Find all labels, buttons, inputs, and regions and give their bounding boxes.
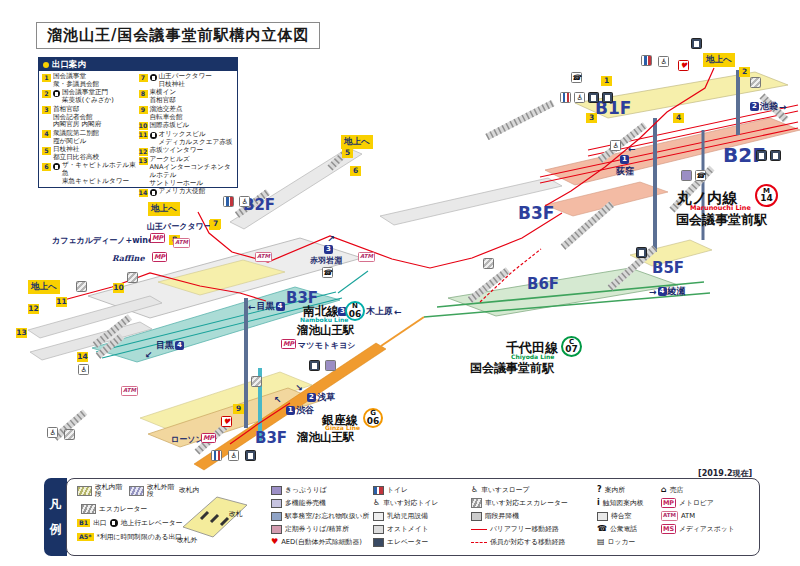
ticket-machine-icon — [325, 360, 336, 371]
direction-akabane-badge: 3 — [324, 245, 333, 254]
chiyoda-station: 国会議事堂前駅 — [470, 360, 554, 377]
chiyoda-line-en: Chiyoda Line — [511, 353, 554, 360]
toilet-icon — [211, 450, 222, 461]
page-title: 溜池山王/国会議事堂前駅構内立体図 — [36, 22, 320, 49]
legend-nursery: 乳幼児用設備 — [373, 511, 428, 521]
wheelchair-toilet-icon: ♿ — [658, 56, 669, 67]
legend-box: 改札内階段 改札外階段 エスカレーター B1出口 地上行エレベーター A5**利… — [66, 478, 760, 556]
exit-entry: 2国会議事堂正門茱萸坂(ぐみざか) — [42, 89, 139, 105]
to-ground-badge: 地上へ — [148, 202, 180, 216]
arrow-upright-icon: ↗ — [327, 234, 335, 244]
legend-ticket-office: きっぷうりば — [271, 485, 327, 495]
elevator-icon — [150, 132, 157, 139]
floor-label-b1f: B1F — [595, 98, 631, 118]
legend-pass-office: 定期券うりば/精算所 — [271, 524, 349, 534]
exit-entry: 3首相官邸国会記者会館内閣官房 内閣府 — [42, 106, 139, 130]
direction-meguro-a: ←目黒4 — [248, 300, 285, 313]
elevator-icon — [588, 92, 599, 103]
floor-label-b5f: B5F — [652, 259, 684, 277]
exit-entry: 4衆議院第二別館霞が関ビル — [42, 130, 139, 146]
aed-icon: ♥ — [271, 538, 278, 546]
direction-ikebukuro: 2池袋→ — [750, 100, 787, 113]
nursery-icon — [373, 512, 384, 521]
legend-escalator: エスカレーター — [81, 504, 147, 514]
exit-entry: 14アメリカ大使館 — [139, 188, 236, 197]
question-icon: ? — [597, 486, 602, 494]
ticket-office-icon — [271, 486, 282, 495]
elevator-icon — [309, 360, 320, 371]
legend-stair-lift: 階段昇降機 — [471, 511, 519, 521]
arrow-left-icon: ← — [394, 307, 402, 317]
toilet-icon — [373, 486, 384, 495]
elevator-icon — [53, 163, 60, 170]
legend-tab: 凡例 — [44, 478, 67, 556]
legend-staff-route: 係員が対応する移動経路 — [471, 537, 565, 547]
arrow-left-icon: ← — [628, 144, 636, 154]
direction-ayase: →4綾瀬 — [649, 285, 686, 298]
ostomate-icon — [373, 525, 384, 534]
map-exit-badge-1: 1 — [601, 76, 612, 86]
legend-wheelchair-toilet: ♿車いす対応トイレ — [373, 498, 438, 508]
to-sanno-park-tower: 山王パークタワーへ — [147, 221, 220, 232]
wheelchair-icon: ♿ — [47, 427, 58, 438]
toilet-icon — [223, 196, 234, 207]
elevator-icon — [150, 189, 157, 196]
phone-icon: ☎ — [695, 170, 706, 181]
wheelchair-toilet-icon: ♿ — [373, 499, 380, 507]
wheelchair-slope-icon: ♿ — [471, 486, 478, 494]
legend-tactile-map: i触知図案内板 — [597, 498, 644, 508]
shop-cafe: カフェカルディーノ+wine — [52, 235, 153, 246]
red-line-icon — [471, 529, 487, 530]
to-ground-badge: 地上へ — [28, 280, 60, 294]
ticket-machine-icon — [681, 170, 692, 181]
legend-media-spot: MSメディアスポット — [661, 524, 735, 534]
legend-barrier-free-route: バリアフリー移動経路 — [471, 524, 559, 534]
legend-shop: ⌂売店 — [661, 485, 683, 495]
metropia-icon: MP — [281, 339, 296, 349]
locker-icon: ▤ — [597, 538, 605, 546]
elevator-icon — [602, 92, 613, 103]
legend-wheelchair-slope: ♿車いすスロープ — [471, 485, 530, 495]
wheelchair-toilet-icon: ♿ — [228, 450, 239, 461]
media-spot-icon: MS — [661, 524, 676, 534]
wheelchair-toilet-icon: ♿ — [239, 196, 250, 207]
direction-meguro-b: 目黒4 — [156, 339, 184, 352]
map-exit-badge-13: 13 — [16, 328, 27, 338]
chiyoda-line-badge: C07 — [561, 336, 582, 357]
metropia-icon: MP — [201, 433, 216, 443]
legend-waiting-room: 待合室 — [597, 511, 631, 521]
escalator-icon — [64, 429, 75, 440]
kiosk-icon: ⌂ — [661, 486, 667, 494]
escalator-icon — [81, 504, 96, 514]
marunouchi-line-badge: M14 — [755, 184, 778, 207]
legend-exit: B1出口 地上行エレベーター — [77, 518, 183, 528]
arrow-downleft-icon: ↙ — [145, 350, 153, 360]
waiting-room-icon — [597, 512, 608, 521]
toilet-icon — [560, 92, 571, 103]
exit-badge-icon: B1 — [77, 519, 90, 527]
exit-entry: 7山王パークタワー日枝神社 — [139, 73, 236, 89]
marunouchi-station: 国会議事堂前駅 — [676, 211, 767, 229]
exit-guide-header: 出口案内 — [39, 58, 237, 71]
legend-ticket-machine: 多機能券売機 — [271, 498, 326, 508]
legend-gate-outside: 改札外 — [177, 535, 197, 545]
exit-entry: 9溜池交差点自転車会館 — [139, 106, 236, 122]
legend-elevator: エレベーター — [373, 537, 428, 547]
metropia-icon: MP — [150, 233, 165, 243]
station-map: 溜池山王/国会議事堂前駅構内立体図 出口案内 1国会議事堂衆・参議員会館 2国会… — [0, 0, 800, 566]
to-ground-badge: 地上へ — [703, 53, 735, 67]
pass-office-icon — [271, 525, 282, 534]
elevator-icon — [756, 150, 767, 161]
elevator-icon — [373, 538, 384, 547]
arrow-downright-icon: ↘ — [295, 383, 303, 393]
to-ground-badge: 地上へ — [341, 135, 373, 149]
legend-public-phone: ☎公衆電話 — [597, 524, 637, 534]
exit-entry: 1国会議事堂衆・参議員会館 — [42, 73, 139, 89]
phone-icon: ☎ — [571, 72, 582, 83]
escalator-icon — [483, 258, 494, 269]
floor-label-b6f: B6F — [527, 275, 559, 293]
direction-akabane: 赤羽岩淵 — [310, 255, 342, 266]
exit-guide-left-column: 1国会議事堂衆・参議員会館 2国会議事堂正門茱萸坂(ぐみざか) 3首相官邸国会記… — [42, 73, 139, 197]
direction-ogikubo-badge: 1 — [620, 155, 629, 164]
legend-ostomate: オストメイト — [373, 524, 429, 534]
floor-label-b3f-right: B3F — [518, 203, 554, 223]
elevator-icon — [636, 247, 647, 258]
legend-restricted-exit: A5**利用に時間制限のある出口 — [77, 532, 182, 542]
atm-icon: ATM — [255, 252, 272, 262]
ginza-station: 溜池山王駅 — [297, 430, 355, 445]
elevator-icon — [245, 450, 256, 461]
elevator-icon — [770, 150, 781, 161]
map-exit-badge-2: 2 — [739, 67, 750, 77]
elevator-icon — [53, 90, 60, 97]
exit-guide-icon — [43, 62, 49, 68]
atm-icon: ATM — [121, 386, 138, 396]
legend-gate: 改札 — [229, 509, 243, 519]
exit-entry: 13アークヒルズANAインターコンチネンタルホテルサントリーホール — [139, 156, 236, 188]
map-exit-badge-6: 6 — [350, 166, 361, 176]
escalator-icon — [750, 77, 761, 88]
map-exit-badge-9: 9 — [233, 404, 244, 414]
escalator-icon — [251, 376, 262, 387]
direction-ogikubo: 荻窪 — [616, 165, 634, 178]
legend-atm: ATMATM — [661, 511, 695, 521]
exit-entry: 5日枝神社都立日比谷高校 — [42, 146, 139, 162]
wheelchair-icon: ♿ — [610, 140, 621, 151]
map-exit-badge-12: 12 — [28, 304, 39, 314]
floor-label-b3f-ginza: B3F — [255, 429, 287, 447]
legend-wheelchair-escalator: 車いす対応エスカレーター — [471, 498, 568, 508]
map-exit-badge-11: 11 — [56, 297, 67, 307]
namboku-line-en: Namboku Line — [300, 316, 348, 323]
map-exit-badge-4: 4 — [673, 113, 684, 123]
elevator-icon — [150, 74, 157, 81]
stairs-inside-icon — [77, 486, 92, 496]
wheelchair-icon: ♿ — [78, 364, 89, 375]
ground-elevator-icon — [110, 519, 118, 527]
shop-raffine: Raffine — [112, 253, 145, 263]
wheelchair-escalator-icon — [471, 498, 482, 508]
atm-icon: ATM — [661, 511, 678, 521]
map-exit-badge-14: 14 — [77, 352, 88, 362]
red-dashed-line-icon — [471, 542, 487, 543]
stair-lift-icon — [471, 512, 482, 521]
elevator-icon — [691, 38, 702, 49]
map-exit-badge-5: 5 — [342, 148, 353, 158]
arrow-right-icon: → — [649, 287, 657, 297]
legend-metropia: MPメトロピア — [661, 498, 714, 508]
map-exit-badge-3: 3 — [586, 113, 597, 123]
metropia-icon: MP — [152, 252, 167, 262]
legend-aed: ♥AED(自動体外式除細動器) — [271, 537, 362, 547]
legend-information: ?案内所 — [597, 485, 625, 495]
ticket-machine-icon — [271, 499, 282, 508]
arrow-left-icon: ← — [248, 302, 256, 312]
legend-toilet: トイレ — [373, 485, 408, 495]
escalator-icon — [127, 272, 138, 283]
legend-locker: ▤ロッカー — [597, 537, 635, 547]
legend-stairs-outside: 改札外階段 — [129, 484, 177, 499]
exit-guide-right-column: 7山王パークタワー日枝神社 8東横イン首相官邸 9溜池交差点自転車会館 10国際… — [139, 73, 236, 197]
exit-entry: 6ザ・キャピトルホテル東急東急キャピトルタワー — [42, 162, 139, 186]
info-icon: i — [597, 499, 600, 507]
arrow-right-icon: → — [779, 102, 787, 112]
exit-entry: 11オリックスビルメディカルスクエア赤坂 — [139, 131, 236, 147]
escalator-icon — [76, 281, 87, 292]
exit-entry: 8東横イン首相官邸 — [139, 89, 236, 105]
stairs-outside-icon — [129, 486, 144, 496]
map-exit-badge-7b: 7 — [210, 219, 221, 229]
legend-station-office: 駅事務室/お忘れ物取扱い所 — [271, 511, 369, 521]
direction-asakusa: 2浅草 — [307, 391, 335, 404]
legend-gate-inside: 改札内 — [179, 485, 199, 495]
aed-icon: ♥ — [221, 416, 232, 427]
station-office-icon — [271, 512, 282, 521]
aed-icon: ♥ — [678, 60, 689, 71]
restricted-exit-badge-icon: A5* — [77, 533, 94, 541]
direction-shibuya: 1渋谷 — [286, 404, 314, 417]
wheelchair-icon: ♿ — [574, 92, 585, 103]
legend-stairs-inside: 改札内階段 — [77, 484, 125, 499]
namboku-station: 溜池山王駅 — [297, 323, 355, 338]
metropia-icon: MP — [661, 498, 676, 508]
ginza-line-badge: G06 — [363, 408, 383, 428]
arrow-upleft-icon: ↖ — [274, 395, 282, 405]
phone-icon: ☎ — [322, 267, 333, 278]
shop-lawson: ローソン — [171, 434, 204, 445]
atm-icon: ATM — [173, 238, 190, 248]
map-exit-badge-10: 10 — [113, 283, 124, 293]
atm-icon: ATM — [358, 252, 375, 262]
exit-guide-box: 出口案内 1国会議事堂衆・参議員会館 2国会議事堂正門茱萸坂(ぐみざか) 3首相… — [38, 57, 238, 188]
toilet-icon — [641, 55, 652, 66]
shop-matsukiyo: マツモトキヨシ — [298, 340, 355, 351]
phone-icon: ☎ — [597, 525, 607, 533]
